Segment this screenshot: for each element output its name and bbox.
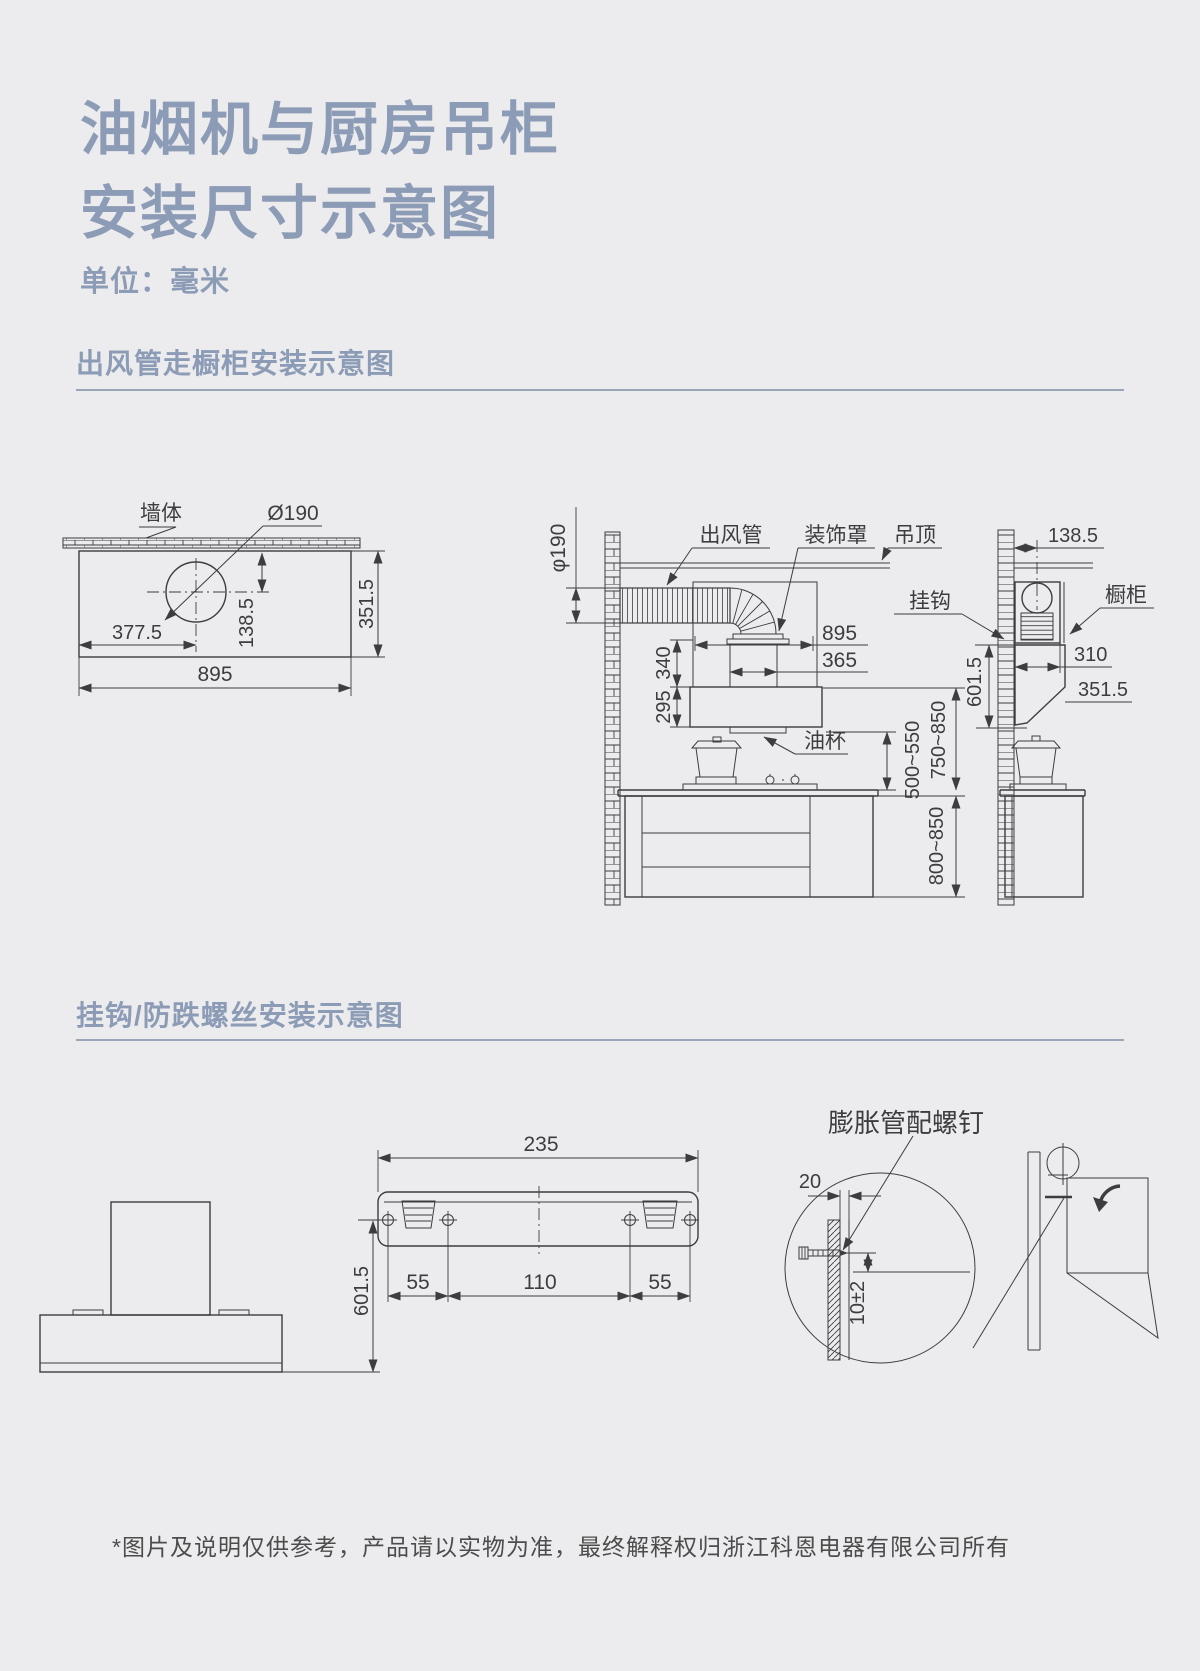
dim-hood-height: 601.5 <box>351 1266 373 1316</box>
cooktop <box>683 784 817 790</box>
dim-counter-height: 800~850 <box>926 807 948 885</box>
section2-heading: 挂钩/防跌螺丝安装示意图 <box>76 994 404 1034</box>
page-title-line1: 油烟机与厨房吊柜 <box>80 88 560 172</box>
countertop <box>618 790 878 796</box>
ext-800 <box>873 796 965 897</box>
wall-leader <box>139 527 176 538</box>
dim-hood-width: 895 <box>822 622 857 645</box>
dim-hood-to-counter: 500~550 <box>902 721 924 799</box>
chimney <box>111 1202 210 1315</box>
mount-tab-left <box>73 1310 103 1315</box>
page-title: 油烟机与厨房吊柜 安装尺寸示意图 <box>80 88 560 256</box>
pot <box>692 737 741 784</box>
wall-label: 墙体 <box>140 502 182 525</box>
dim-lower-height: 295 <box>653 690 675 723</box>
oilcup-label: 油杯 <box>804 730 846 753</box>
hood-body <box>690 687 822 727</box>
dim-cabinet-width: 310 <box>1074 644 1107 666</box>
pot-2 <box>1010 736 1066 790</box>
ext-10 <box>840 1253 970 1272</box>
flange-lip <box>727 639 789 644</box>
cover-leader <box>779 548 875 631</box>
screw-detail-view: 膨胀管配螺钉 20 10±2 <box>785 1108 1158 1363</box>
dim-mid-to-counter: 750~850 <box>928 701 950 779</box>
page-title-line2: 安装尺寸示意图 <box>80 172 560 256</box>
base-cabinet <box>625 796 873 897</box>
hook-leader <box>894 614 1004 639</box>
unit-label: 单位：毫米 <box>80 258 230 300</box>
oilcup <box>730 727 786 733</box>
footer-disclaimer: *图片及说明仅供参考，产品请以实物为准，最终解释权归浙江科恩电器有限公司所有 <box>112 1528 1010 1562</box>
dim-outlet-width: 365 <box>822 649 857 672</box>
section1-heading: 出风管走橱柜安装示意图 <box>76 342 395 382</box>
detail-circle <box>785 1173 975 1363</box>
hook-screw-diagram: 601.5 235 55 110 <box>30 1040 1170 1440</box>
dim-hole-left: 55 <box>406 1271 429 1294</box>
dim-hook-height: 601.5 <box>964 657 986 707</box>
dim-hood-depth: 351.5 <box>1078 679 1128 701</box>
duct-corrugated <box>620 588 730 623</box>
wall-hatched <box>828 1220 840 1360</box>
burner <box>766 774 799 784</box>
ceiling-line-2 <box>1014 563 1093 568</box>
cabinet-label: 橱柜 <box>1105 584 1147 607</box>
detail-connector <box>973 1198 1064 1348</box>
anchor-leader <box>843 1136 913 1250</box>
duct-dia-label: φ190 <box>547 524 570 573</box>
side-view: 出风管 装饰罩 吊顶 φ190 895 365 <box>547 507 965 905</box>
dim-screw-offset: 10±2 <box>847 1281 869 1325</box>
anchor-label: 膨胀管配螺钉 <box>828 1108 984 1138</box>
ext-310 <box>1015 643 1060 673</box>
dim-hole-x: 377.5 <box>112 622 162 644</box>
cover-label: 装饰罩 <box>805 524 868 547</box>
dim-wall-to-center: 138.5 <box>1048 525 1098 547</box>
hood-front-view: 601.5 <box>40 1202 388 1372</box>
dim-embed-depth: 20 <box>799 1171 821 1193</box>
dim-depth: 351.5 <box>356 579 378 629</box>
duct-leader <box>667 548 770 585</box>
outlet-section <box>730 644 777 687</box>
ceiling-leader <box>882 548 942 560</box>
ceiling-label: 吊顶 <box>894 524 936 547</box>
dim-upper-height: 340 <box>653 646 675 679</box>
manual-page: 油烟机与厨房吊柜 安装尺寸示意图 单位：毫米 出风管走橱柜安装示意图 <box>0 0 1200 1671</box>
bracket-view: 235 55 110 55 <box>378 1133 699 1302</box>
duct-routing-diagram: 墙体 Ø190 377.5 138.5 351.5 895 出风管 装饰罩 <box>30 430 1170 910</box>
hook-tabs <box>402 1201 677 1228</box>
dim-hole-right: 55 <box>648 1271 671 1294</box>
base-cabinet-2 <box>1005 796 1083 897</box>
dim-hole-middle: 110 <box>523 1271 556 1294</box>
bracket-body <box>378 1192 698 1246</box>
top-view: 墙体 Ø190 377.5 138.5 351.5 895 <box>63 502 385 696</box>
ext-235 <box>378 1150 698 1192</box>
dim-width: 895 <box>197 663 232 686</box>
section1-rule <box>76 389 1124 391</box>
hood-side-small <box>1028 1143 1158 1350</box>
hole-dia-label: Ø190 <box>267 502 318 525</box>
hood-side-profile <box>1015 645 1065 725</box>
ext-20 <box>840 1190 849 1220</box>
duct-label: 出风管 <box>700 524 763 547</box>
dim-bracket-width: 235 <box>523 1133 558 1156</box>
ceiling-line <box>620 563 890 568</box>
dim-hole-y: 138.5 <box>236 598 258 648</box>
flange-top <box>733 634 783 639</box>
hook-label: 挂钩 <box>909 590 951 613</box>
mount-tab-right <box>219 1310 249 1315</box>
wall-section <box>63 538 360 548</box>
elbow-fan <box>733 590 775 632</box>
cabinet-leader <box>1070 608 1154 634</box>
duct-corrugated-vertical <box>1021 613 1053 640</box>
